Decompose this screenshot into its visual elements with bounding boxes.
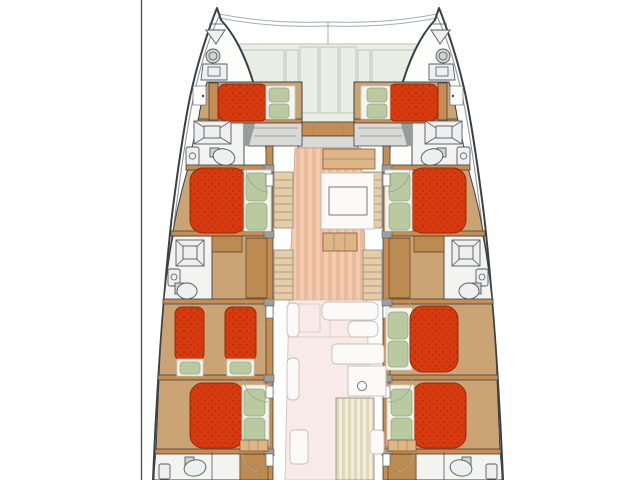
hull-steps: [274, 172, 293, 300]
single-bed-mattress: [175, 307, 204, 361]
mid-double-bed: [190, 168, 271, 233]
pillow: [246, 173, 267, 201]
pillow: [230, 362, 251, 374]
wetbar: [348, 366, 386, 396]
toilet: [177, 283, 197, 299]
cockpit-sofa: [348, 321, 378, 337]
pillow: [244, 389, 265, 416]
pillow: [246, 203, 267, 230]
floor-plan-drawing: [0, 0, 640, 480]
cabin-door: [266, 386, 273, 398]
forward-double-bed: [209, 83, 295, 121]
mattress: [190, 168, 246, 233]
pillow: [388, 341, 408, 367]
single-bed-mattress: [225, 307, 256, 361]
bench-seat: [212, 236, 242, 252]
mattress: [410, 306, 458, 372]
catamaran-floor-plan: [0, 0, 640, 480]
bulkhead: [163, 299, 268, 304]
salon-galley: [321, 149, 375, 251]
sink: [186, 147, 199, 165]
cockpit-table: [336, 398, 374, 480]
cabin-door: [266, 454, 273, 466]
aft-double-bed: [190, 383, 269, 448]
sink: [159, 464, 170, 479]
pillow: [269, 104, 289, 118]
cabin-door: [266, 306, 273, 318]
mattress: [218, 84, 268, 121]
cockpit-bench: [332, 344, 384, 364]
cockpit-sofa: [322, 302, 378, 320]
pillow: [180, 362, 200, 374]
bow-hatch: [206, 49, 220, 63]
pillow: [269, 88, 289, 102]
cockpit-seat: [287, 303, 299, 337]
starboard-guest-double-bed: [386, 306, 458, 372]
drawers: [240, 440, 268, 451]
pillow: [388, 312, 408, 339]
mattress: [190, 383, 244, 448]
cockpit-seat: [290, 430, 308, 464]
cockpit-seat: [370, 430, 384, 454]
wardrobe: [246, 238, 267, 298]
headboard: [209, 83, 218, 120]
bow-rigging-lines: [219, 14, 437, 44]
wardrobe: [240, 454, 268, 480]
galley-cabinet: [323, 233, 357, 251]
cockpit-seat: [287, 358, 299, 400]
companionway: [298, 122, 358, 148]
cabin-door: [266, 174, 273, 186]
